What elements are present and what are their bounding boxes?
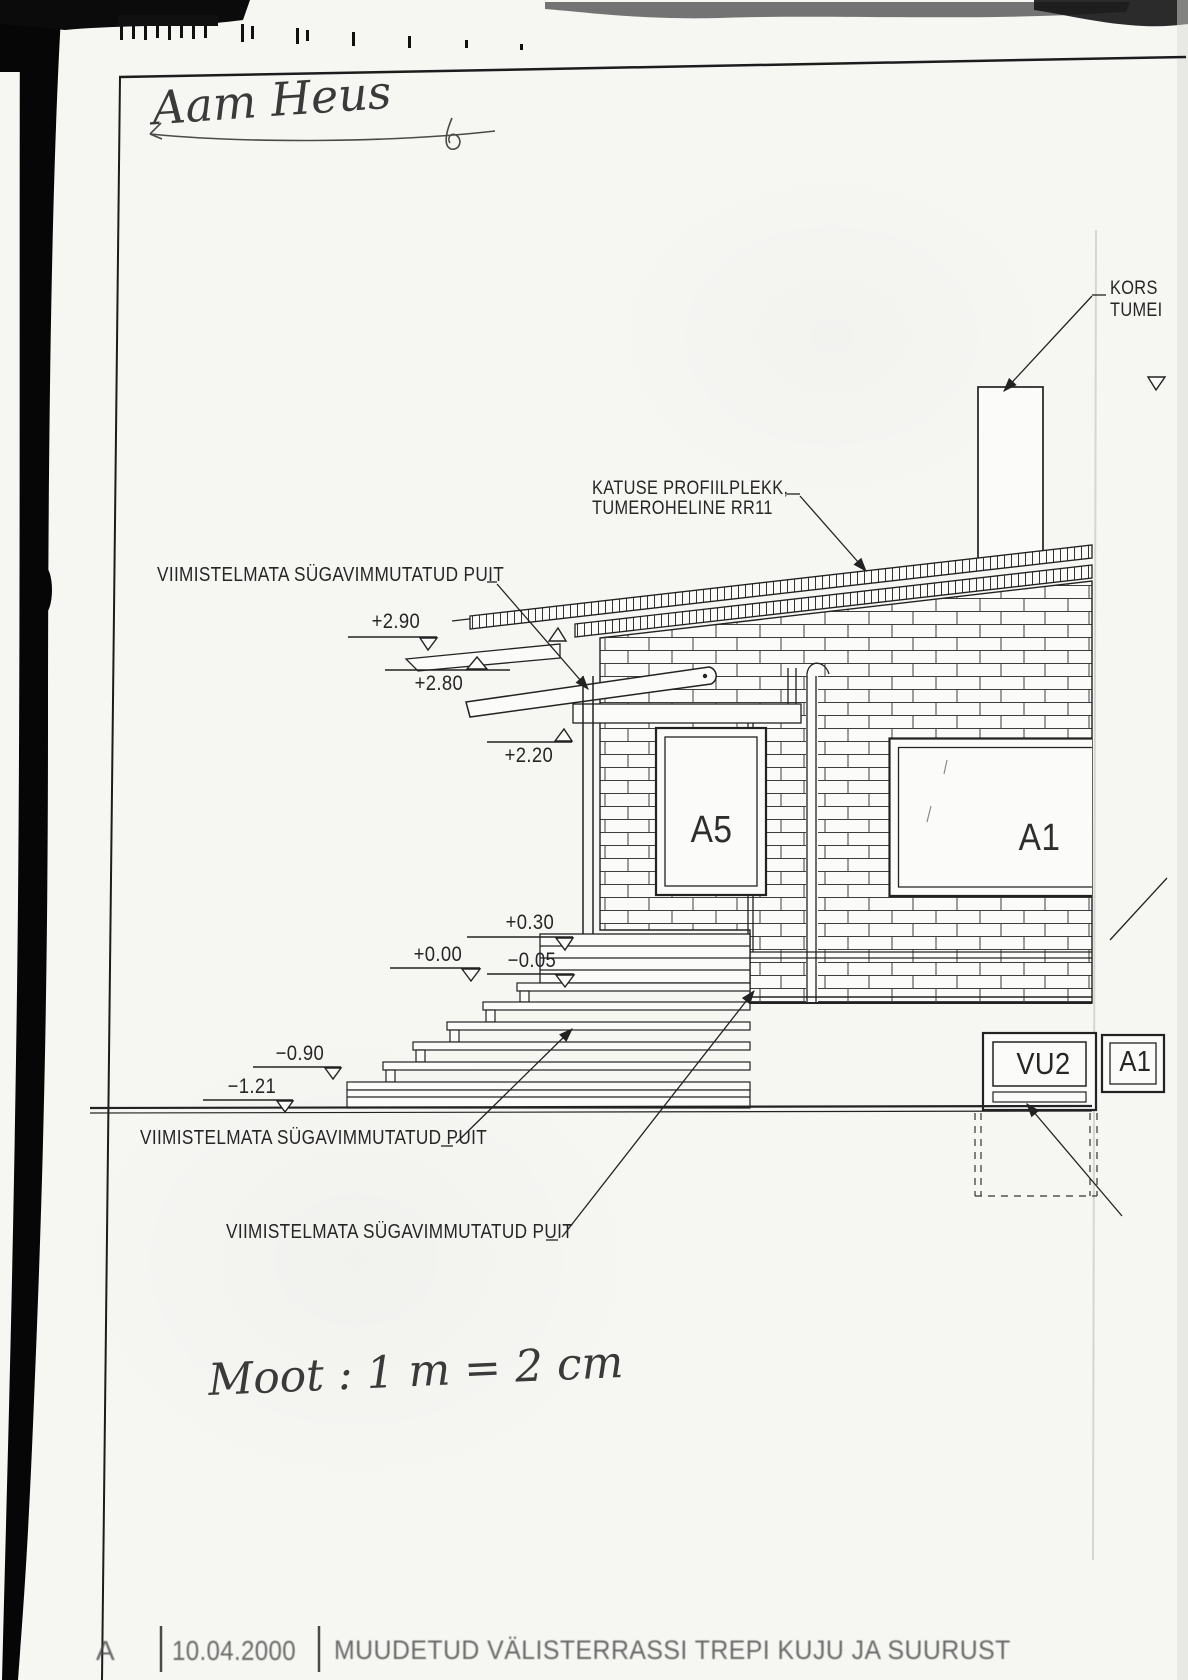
scanned-elevation-drawing: Aam Heus KORS TUMEI KATUSE PROFIILPLEKK,…: [0, 0, 1188, 1680]
titleblock-rules: [0, 0, 1188, 1680]
titleblock-date: 10.04.2000: [172, 1636, 316, 1666]
titleblock-description: MUUDETUD VÄLISTERRASSI TREPI KUJU JA SUU…: [334, 1636, 1070, 1665]
